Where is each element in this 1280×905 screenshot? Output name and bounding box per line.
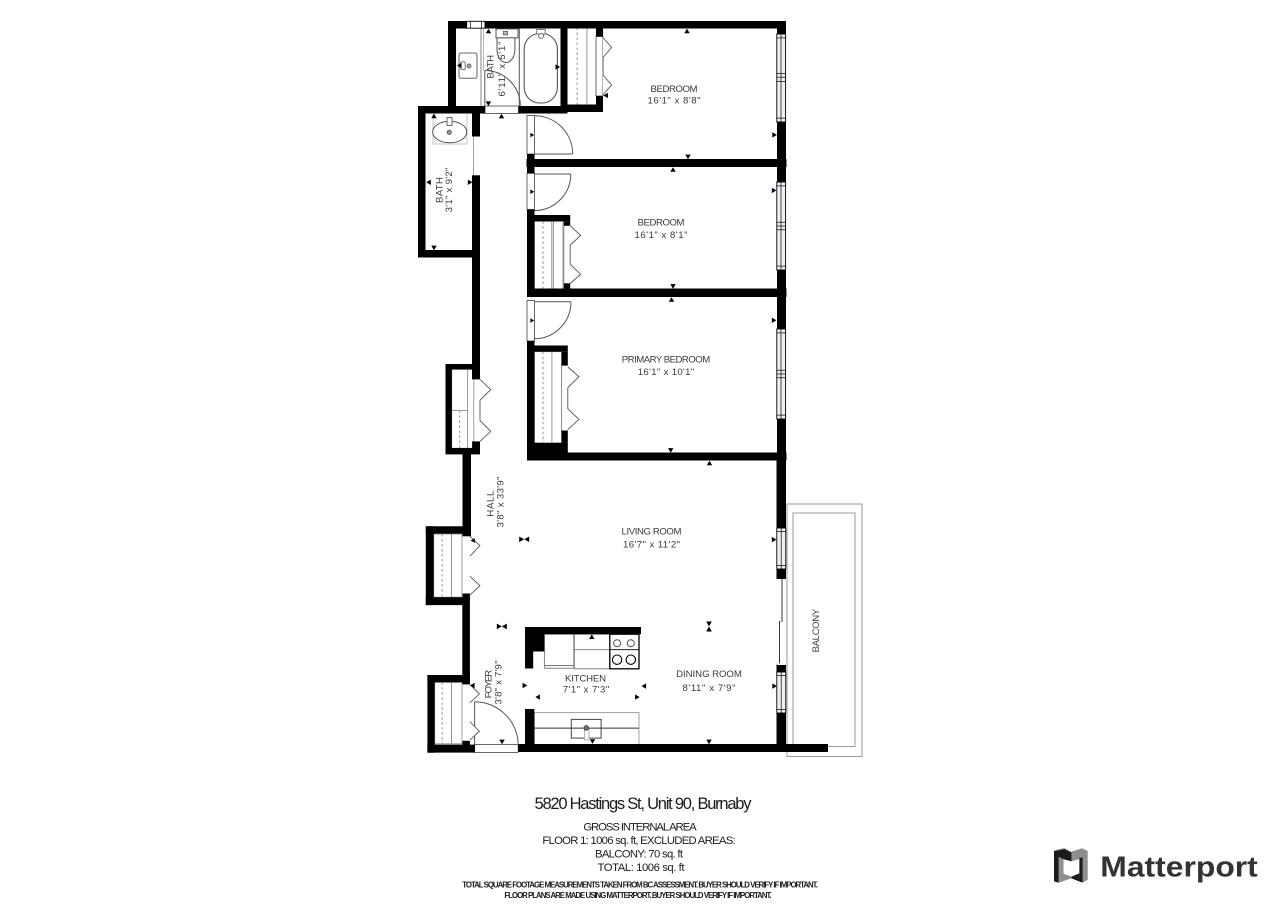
svg-text:16'1" x 8'8": 16'1" x 8'8": [648, 96, 701, 107]
svg-text:8'11" x 7'9": 8'11" x 7'9": [683, 683, 736, 694]
svg-text:GROSS INTERNAL AREA: GROSS INTERNAL AREA: [583, 822, 697, 834]
svg-text:BEDROOM: BEDROOM: [651, 84, 698, 95]
svg-text:KITCHEN: KITCHEN: [565, 674, 606, 685]
svg-text:16'1" x 8'1": 16'1" x 8'1": [635, 230, 688, 241]
svg-text:FOYER: FOYER: [483, 670, 494, 699]
svg-text:3'1" x 9'2": 3'1" x 9'2": [444, 168, 455, 213]
svg-text:BALCONY: BALCONY: [811, 608, 822, 652]
svg-text:Matterport: Matterport: [1100, 852, 1258, 884]
svg-text:TOTAL SQUARE FOOTAGE MEASUREME: TOTAL SQUARE FOOTAGE MEASUREMENTS TAKEN …: [462, 880, 818, 889]
svg-text:BALCONY: 70 sq. ft: BALCONY: 70 sq. ft: [595, 849, 684, 861]
svg-text:16'1" x 10'1": 16'1" x 10'1": [638, 367, 695, 378]
svg-text:3'8" x 33'9": 3'8" x 33'9": [496, 476, 507, 527]
svg-text:FLOOR PLANS ARE MADE USING MAT: FLOOR PLANS ARE MADE USING MATTERPORT. B…: [504, 891, 771, 900]
svg-text:TOTAL: 1006 sq. ft: TOTAL: 1006 sq. ft: [598, 862, 686, 874]
svg-text:5820 Hastings St, Unit 90, Bur: 5820 Hastings St, Unit 90, Burnaby: [535, 795, 753, 813]
svg-text:BEDROOM: BEDROOM: [638, 218, 685, 229]
svg-text:PRIMARY BEDROOM: PRIMARY BEDROOM: [622, 355, 711, 366]
svg-text:LIVING ROOM: LIVING ROOM: [622, 527, 682, 538]
svg-text:7'1" x 7'3": 7'1" x 7'3": [563, 685, 610, 696]
svg-text:DINING ROOM: DINING ROOM: [676, 669, 742, 680]
svg-text:BATH: BATH: [486, 55, 497, 79]
svg-text:16'7" x 11'2": 16'7" x 11'2": [623, 540, 680, 551]
svg-text:3'8" x 7'9": 3'8" x 7'9": [494, 661, 505, 705]
svg-text:6'11" x 5'1": 6'11" x 5'1": [497, 41, 508, 96]
svg-text:FLOOR 1: 1006 sq. ft, EXCLUDED: FLOOR 1: 1006 sq. ft, EXCLUDED AREAS:: [542, 835, 735, 847]
